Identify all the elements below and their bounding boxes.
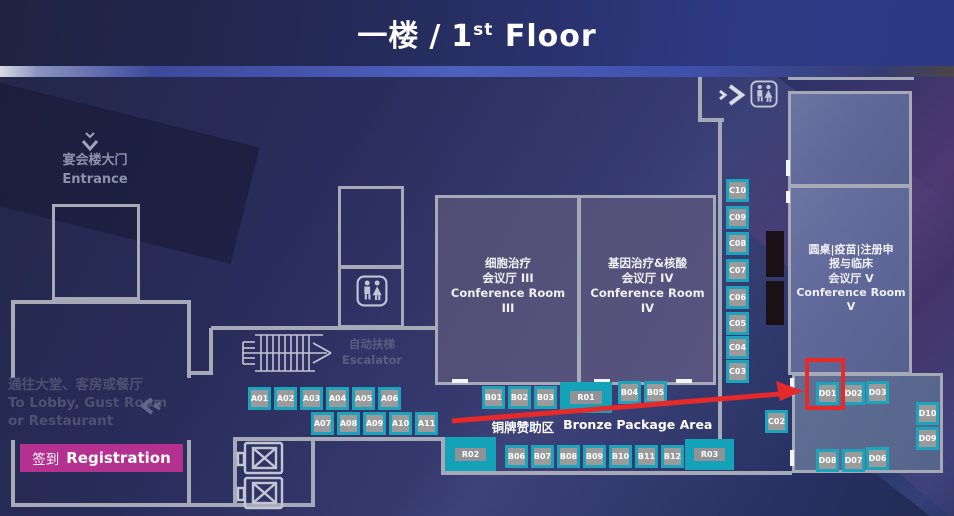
booth-c04: C04 — [726, 336, 749, 359]
floor-number: 1 — [451, 19, 473, 54]
booth-a11: A11 — [415, 412, 438, 435]
room3-en1: Conference Room — [439, 286, 577, 301]
booth-d02: D02 — [842, 382, 865, 405]
booth-b02: B02 — [508, 386, 531, 409]
booth-d08: D08 — [816, 449, 839, 472]
room5-en1: Conference Room — [792, 286, 910, 300]
room3-zh2: 会议厅 III — [439, 271, 577, 286]
booth-b11: B11 — [635, 445, 658, 468]
booth-r03: R03 — [685, 439, 734, 470]
lobby-zh: 通往大堂、客房或餐厅 — [8, 376, 178, 394]
room5-zh3: 会议厅 V — [792, 272, 910, 286]
divider-band — [0, 66, 954, 77]
chevron-right-icon — [716, 84, 750, 106]
bronze-en: Bronze Package Area — [563, 417, 712, 436]
wall — [187, 371, 213, 375]
side-room — [338, 186, 404, 268]
booth-b07: B07 — [531, 445, 554, 468]
door-mark — [786, 160, 790, 176]
floor-plan: 一楼/1st Floor 细胞治疗 会议厅 III Conference Roo… — [0, 0, 954, 516]
room5-en2: V — [792, 300, 910, 314]
booth-a02: A02 — [274, 387, 297, 410]
escalator-zh: 自动扶梯 — [334, 336, 410, 352]
booth-d06: D06 — [866, 447, 889, 470]
booth-r03-label: R03 — [694, 448, 725, 461]
booth-c05: C05 — [726, 312, 749, 335]
room5-zh2: 报与临床 — [792, 257, 910, 271]
registration-en: Registration — [66, 449, 171, 467]
pillar — [766, 231, 784, 277]
booth-c10: C10 — [726, 179, 749, 202]
wall — [441, 471, 792, 475]
booth-a03: A03 — [300, 387, 323, 410]
booth-b10: B10 — [609, 445, 632, 468]
entrance-zh: 宴会楼大门 — [25, 152, 165, 171]
booth-c08: C08 — [726, 232, 749, 255]
room4-zh1: 基因治疗&核酸 — [581, 256, 714, 271]
booth-b01: B01 — [482, 386, 505, 409]
registration-zh: 签到 — [32, 448, 59, 468]
door-mark — [786, 191, 790, 203]
booth-c06: C06 — [726, 286, 749, 309]
room4-en1: Conference Room — [581, 286, 714, 301]
room3-zh1: 细胞治疗 — [439, 256, 577, 271]
booth-d01: D01 — [816, 382, 839, 405]
escalator-label: 自动扶梯 Escalator — [334, 336, 410, 368]
restroom-icon — [750, 80, 778, 108]
elevator-icon — [236, 441, 284, 475]
wall — [311, 437, 315, 507]
wall — [187, 300, 191, 378]
escalator-en: Escalator — [334, 352, 410, 368]
entrance-en: Entrance — [25, 171, 165, 190]
booth-c03: C03 — [726, 360, 749, 383]
wall — [11, 300, 191, 304]
booth-a10: A10 — [389, 412, 412, 435]
wall — [209, 328, 213, 375]
booth-c02: C02 — [765, 410, 788, 433]
booth-a01: A01 — [248, 387, 271, 410]
booth-b06: B06 — [505, 445, 528, 468]
chevron-left-icon — [136, 396, 164, 416]
wall — [718, 118, 722, 440]
wall — [698, 77, 702, 122]
room5-zh1: 圆桌|疫苗|注册申 — [792, 243, 910, 257]
page-title: 一楼/1st Floor — [357, 11, 596, 55]
conference-room-3-label: 细胞治疗 会议厅 III Conference Room III — [439, 256, 577, 316]
room3-en2: III — [439, 301, 577, 316]
booth-a05: A05 — [352, 387, 375, 410]
booth-c07: C07 — [726, 259, 749, 282]
booth-c09: C09 — [726, 206, 749, 229]
booth-a08: A08 — [337, 412, 360, 435]
booth-b09: B09 — [583, 445, 606, 468]
header: 一楼/1st Floor — [0, 0, 954, 66]
booth-r01: R01 — [560, 382, 612, 413]
booth-a07: A07 — [311, 412, 334, 435]
wall — [11, 300, 15, 378]
booth-b04: B04 — [618, 381, 641, 404]
wall — [11, 440, 15, 507]
room4-en2: IV — [581, 301, 714, 316]
booth-a04: A04 — [326, 387, 349, 410]
booth-b12: B12 — [661, 445, 684, 468]
restroom-icon — [356, 275, 388, 307]
floor-word: Floor — [505, 19, 597, 54]
booth-d07: D07 — [842, 449, 865, 472]
wall — [187, 440, 191, 507]
conference-room-5-label: 圆桌|疫苗|注册申 报与临床 会议厅 V Conference Room V — [792, 243, 910, 314]
conference-room-4-label: 基因治疗&核酸 会议厅 IV Conference Room IV — [581, 256, 714, 316]
title-separator: / — [429, 19, 441, 54]
registration-banner: 签到 Registration — [20, 444, 183, 472]
right-top-room — [788, 91, 912, 187]
door-mark — [676, 379, 692, 383]
booth-d03: D03 — [866, 381, 889, 404]
door-mark — [452, 379, 468, 383]
entrance-room — [52, 204, 140, 300]
booth-b03: B03 — [534, 386, 557, 409]
booth-r01-label: R01 — [570, 391, 601, 404]
title-zh: 一楼 — [357, 19, 419, 54]
booth-a06: A06 — [378, 387, 401, 410]
booth-r02: R02 — [445, 437, 496, 471]
escalator-icon — [241, 330, 333, 376]
door-mark — [790, 378, 794, 396]
booth-d10: D10 — [916, 402, 939, 425]
booth-b08: B08 — [557, 445, 580, 468]
booth-d09: D09 — [916, 427, 939, 450]
door-mark — [790, 450, 794, 466]
entrance-label: 宴会楼大门 Entrance — [25, 152, 165, 190]
pillar — [766, 281, 784, 325]
wall — [788, 77, 914, 80]
booth-b05: B05 — [644, 381, 667, 404]
bronze-area-label: 铜牌赞助区 Bronze Package Area — [452, 417, 752, 436]
bronze-zh: 铜牌赞助区 — [492, 417, 555, 436]
booth-a09: A09 — [363, 412, 386, 435]
floor-ordinal: st — [473, 20, 493, 40]
room4-zh2: 会议厅 IV — [581, 271, 714, 286]
elevator-icon — [236, 476, 284, 510]
booth-r02-label: R02 — [455, 448, 486, 461]
